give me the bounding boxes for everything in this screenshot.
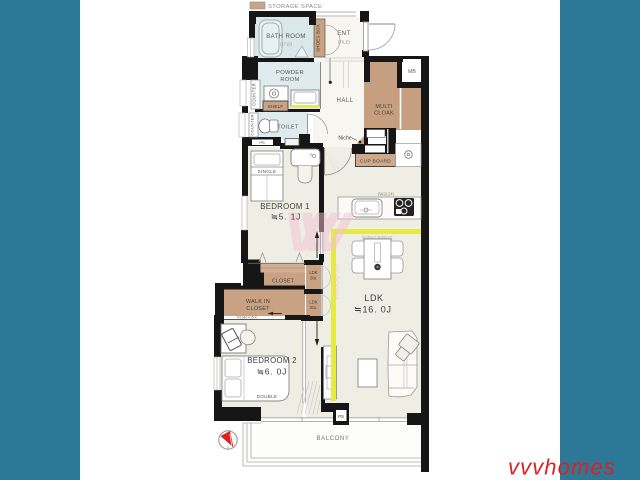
svg-text:BEDROOM 1: BEDROOM 1 [260, 202, 310, 211]
svg-text:SHOES BOX: SHOES BOX [316, 24, 321, 52]
svg-text:COUNTER: COUNTER [250, 114, 255, 135]
svg-text:POWDER: POWDER [276, 70, 304, 76]
svg-text:CLOSET: CLOSET [272, 279, 295, 285]
svg-text:Sto.: Sto. [310, 305, 317, 310]
svg-text:LDK: LDK [364, 293, 383, 303]
svg-text:SINGLE: SINGLE [258, 169, 277, 174]
svg-text:≒16. 0J: ≒16. 0J [354, 305, 392, 315]
svg-text:BEDROOM 2: BEDROOM 2 [247, 356, 297, 365]
svg-text:Niche: Niche [338, 136, 351, 142]
svg-text:STORAGE SPACE: STORAGE SPACE [268, 4, 322, 10]
svg-text:WALK IN: WALK IN [246, 299, 270, 305]
svg-text:vvvhomes: vvvhomes [508, 455, 616, 480]
svg-text:CLOSET: CLOSET [246, 306, 270, 312]
svg-text:MB: MB [408, 69, 416, 75]
svg-text:CLOAK: CLOAK [374, 111, 394, 117]
svg-text:DOUBLE: DOUBLE [257, 394, 278, 399]
svg-text:LDK: LDK [309, 270, 317, 275]
svg-text:BALCONY: BALCONY [317, 436, 350, 442]
svg-text:PS: PS [338, 414, 344, 419]
svg-text:HALL: HALL [336, 98, 353, 104]
svg-text:vvvhomes: vvvhomes [332, 264, 341, 300]
svg-text:(W2124): (W2124) [378, 192, 395, 197]
svg-text:SHELF: SHELF [268, 104, 284, 109]
svg-text:ROOM: ROOM [280, 77, 299, 83]
svg-text:Sto.: Sto. [310, 276, 317, 281]
svg-text:CUP BOARD: CUP BOARD [360, 159, 391, 165]
svg-text:LDK: LDK [309, 300, 317, 305]
svg-text:(1716): (1716) [280, 42, 293, 47]
svg-text:≒6. 0J: ≒6. 0J [257, 367, 287, 377]
svg-text:BATH ROOM: BATH ROOM [266, 34, 306, 40]
svg-text:TOILET: TOILET [277, 125, 298, 131]
svg-text:≒5. 1J: ≒5. 1J [271, 212, 301, 222]
svg-text:MULTI: MULTI [375, 104, 392, 110]
svg-text:COUNTER: COUNTER [252, 83, 257, 106]
svg-text:W1640×D500: W1640×D500 [237, 316, 258, 320]
svg-text:PS: PS [259, 140, 265, 145]
